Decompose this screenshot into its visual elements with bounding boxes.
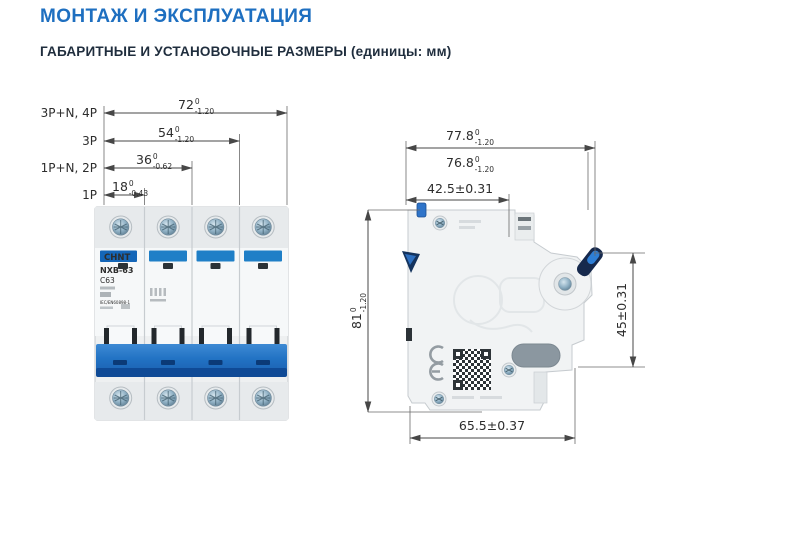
catalog-page: МОНТАЖ И ЭКСПЛУАТАЦИЯ ГАБАРИТНЫЕ И УСТАН… <box>0 0 785 538</box>
front-view: CHNT NXB-63 C63 IEC/EN60898-1 <box>41 97 288 420</box>
dimension-drawing: CHNT NXB-63 C63 IEC/EN60898-1 <box>0 0 785 538</box>
din-rail-release <box>512 344 560 367</box>
dim-42-5: 42.5±0.31 <box>427 181 493 196</box>
brand-text: CHNT <box>104 253 130 263</box>
front-breaker-image: CHNT NXB-63 C63 IEC/EN60898-1 <box>95 207 288 420</box>
front-dimensions: 3P+N, 4P 3P 1P+N, 2P 1P 720-1.20 540-1.2… <box>41 97 287 205</box>
model-text: NXB-63 <box>100 266 133 275</box>
dim-77-8: 77.80-1.20 <box>446 128 494 147</box>
pole-label-1p: 1P <box>82 188 97 202</box>
pole-label-2p: 1P+N, 2P <box>41 161 97 175</box>
dim-45: 45±0.31 <box>614 283 629 337</box>
handle-bar <box>96 344 287 377</box>
dim-76-8: 76.80-1.20 <box>446 155 494 174</box>
qr-code <box>453 349 491 390</box>
dim-81: 810-1.20 <box>349 293 368 329</box>
dim-65-5: 65.5±0.37 <box>459 418 525 433</box>
pole-label-3p: 3P <box>82 134 97 148</box>
pole-label-4p: 3P+N, 4P <box>41 106 97 120</box>
rating-text: C63 <box>100 276 115 285</box>
side-view: 77.80-1.20 76.80-1.20 42.5±0.31 810-1.20… <box>349 128 645 444</box>
